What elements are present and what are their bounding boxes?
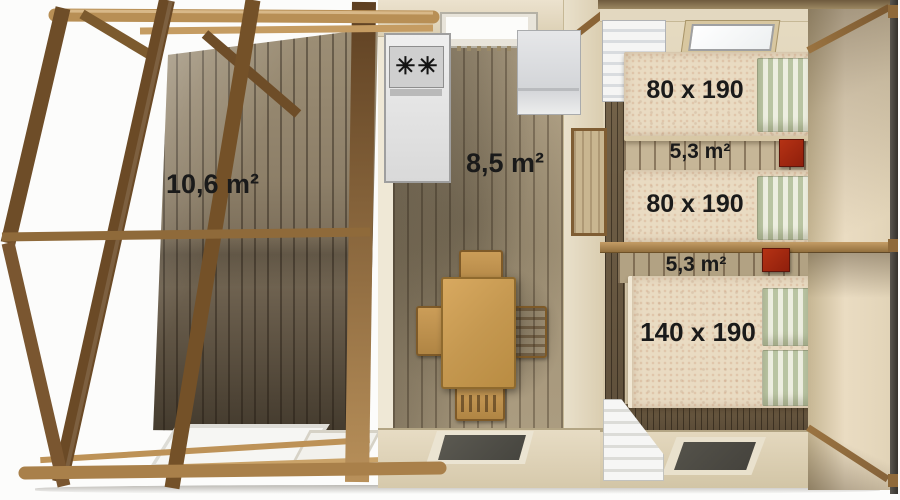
gas-burner-icon: ✳ bbox=[418, 55, 438, 79]
pergola-post bbox=[8, 243, 64, 486]
rail-highlight bbox=[55, 11, 433, 13]
building-top-edge bbox=[598, 0, 898, 9]
pergola-top-rail bbox=[55, 15, 433, 17]
bedroom-window bbox=[674, 442, 756, 470]
beam-end-cap bbox=[888, 239, 898, 252]
bed-size-label-bottom: 80 x 190 bbox=[628, 191, 762, 217]
bedroom-double-area-label: 5,3 m² bbox=[636, 254, 756, 276]
bedroom-twin-area-label: 5,3 m² bbox=[640, 141, 760, 163]
skylight-window bbox=[688, 24, 775, 51]
terrace-deck bbox=[150, 25, 390, 435]
bed-size-label-top: 80 x 190 bbox=[628, 77, 762, 103]
kitchen-window-pane bbox=[446, 17, 528, 39]
pillow bbox=[762, 288, 810, 346]
dining-table bbox=[441, 277, 516, 389]
beam-end-cap bbox=[888, 474, 898, 487]
red-stool bbox=[762, 248, 790, 272]
pillow bbox=[762, 350, 810, 406]
fridge-cabinet-ledge bbox=[518, 88, 579, 91]
dining-chair-right bbox=[514, 306, 547, 358]
pillow bbox=[757, 58, 812, 132]
stove-control-strip bbox=[390, 89, 442, 96]
red-stool bbox=[779, 139, 804, 167]
living-area-label: 8,5 m² bbox=[443, 149, 567, 177]
pergola-post bbox=[60, 0, 167, 482]
pergola-post bbox=[8, 8, 63, 243]
terrace-area-label: 10,6 m² bbox=[135, 170, 290, 198]
double-bed-size-label: 140 x 190 bbox=[628, 319, 768, 346]
fridge-cabinet bbox=[517, 30, 581, 115]
entry-window bbox=[438, 435, 526, 460]
wall-shadow bbox=[808, 252, 890, 298]
beam-end-cap bbox=[888, 5, 898, 18]
divider-wall-niche bbox=[571, 128, 607, 236]
stove-top: ✳ ✳ bbox=[389, 46, 444, 88]
floor-plan-scene: ✳ ✳ bbox=[0, 0, 900, 500]
chair-slats bbox=[461, 395, 496, 412]
pillow bbox=[757, 176, 812, 240]
pergola-brace bbox=[82, 14, 152, 56]
gas-burner-icon: ✳ bbox=[395, 55, 415, 79]
